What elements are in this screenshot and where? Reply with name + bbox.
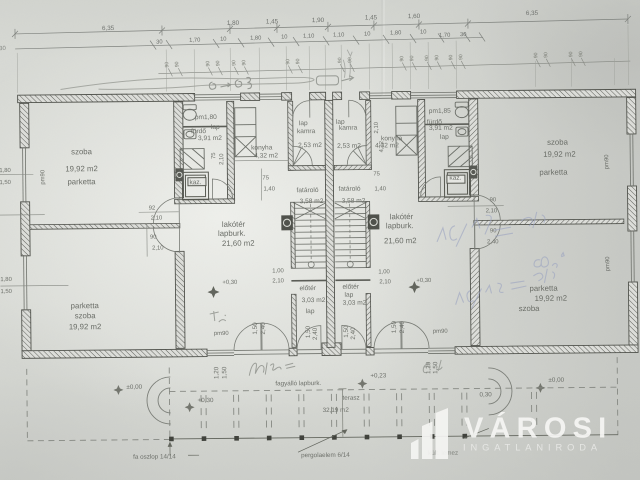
svg-text:INGATLANIRODA: INGATLANIRODA — [463, 443, 602, 453]
svg-text:VÁROSI: VÁROSI — [464, 411, 612, 445]
